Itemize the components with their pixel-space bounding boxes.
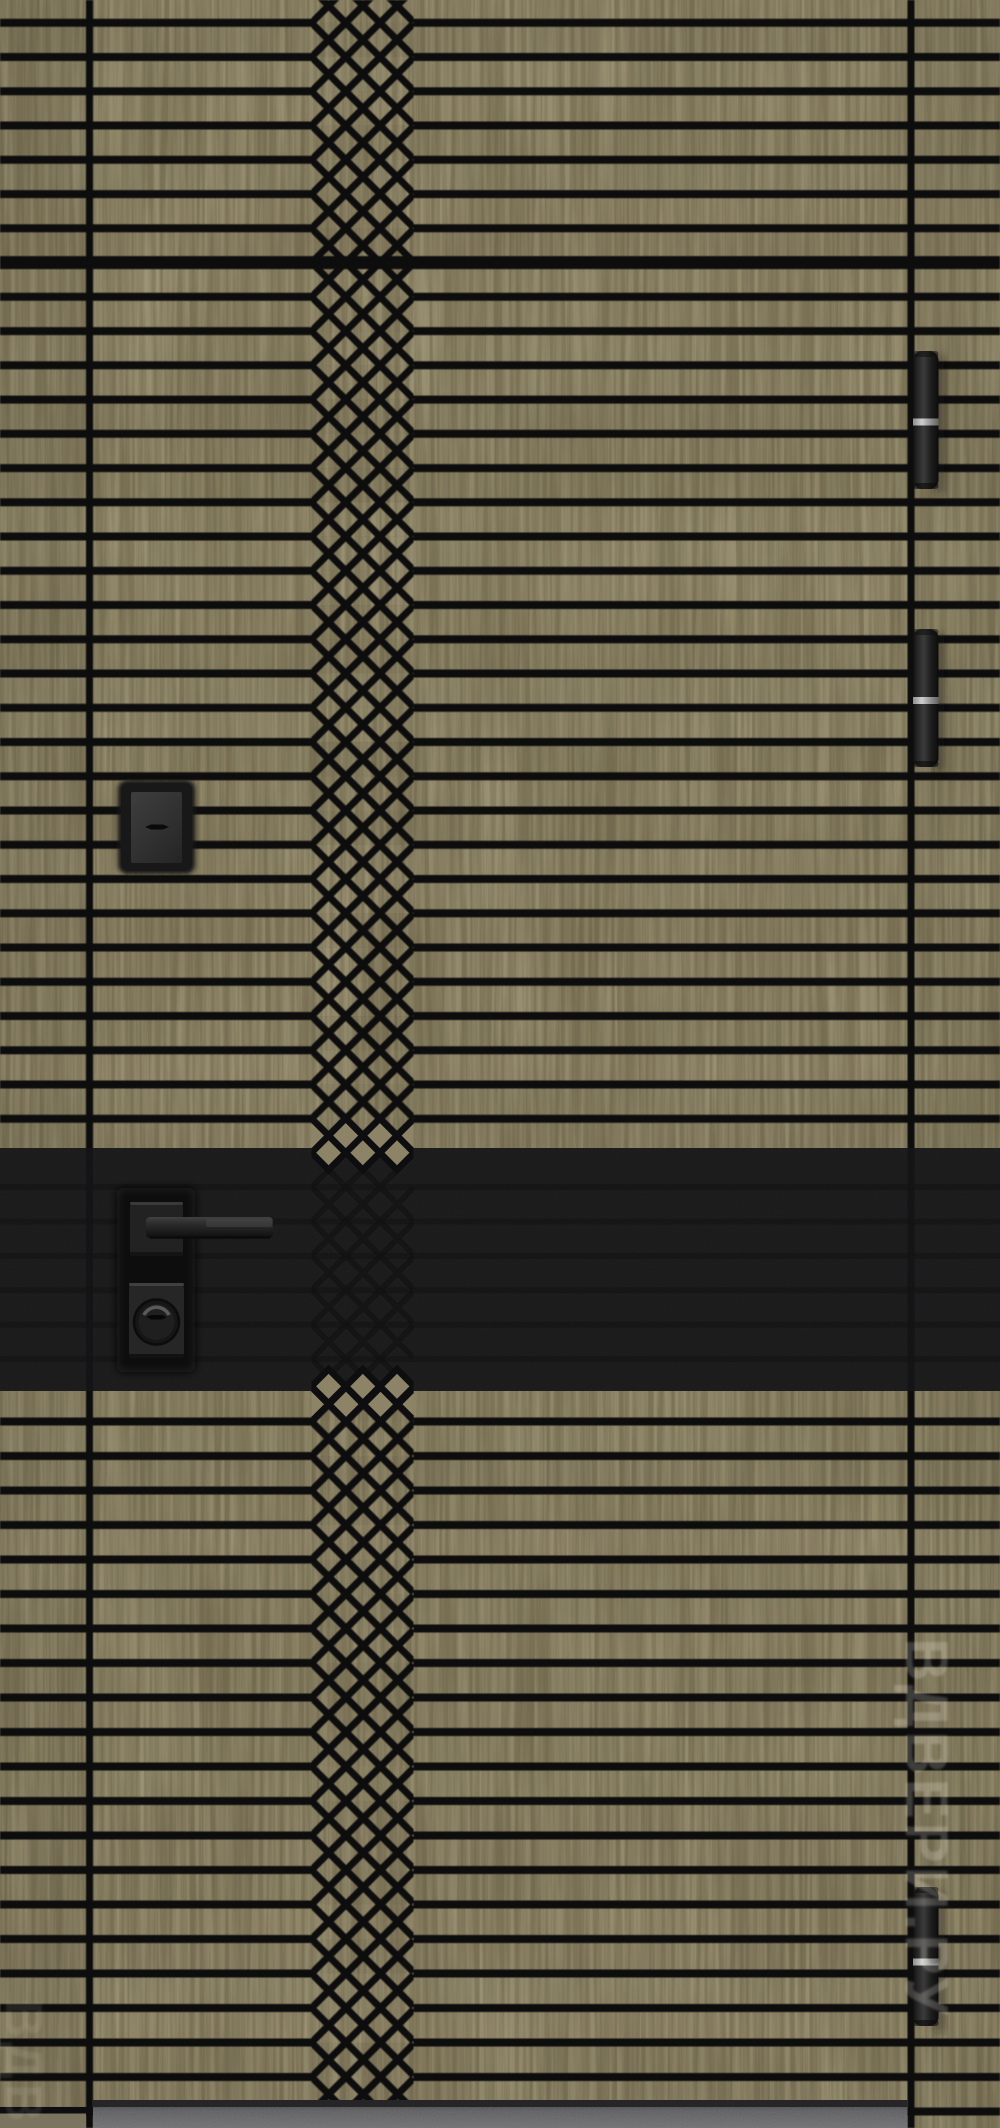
svg-text:ВДВЕРИ.РУ: ВДВЕРИ.РУ (893, 1638, 960, 2019)
svg-text:ВДВЕРИ: ВДВЕРИ (0, 2000, 52, 2128)
